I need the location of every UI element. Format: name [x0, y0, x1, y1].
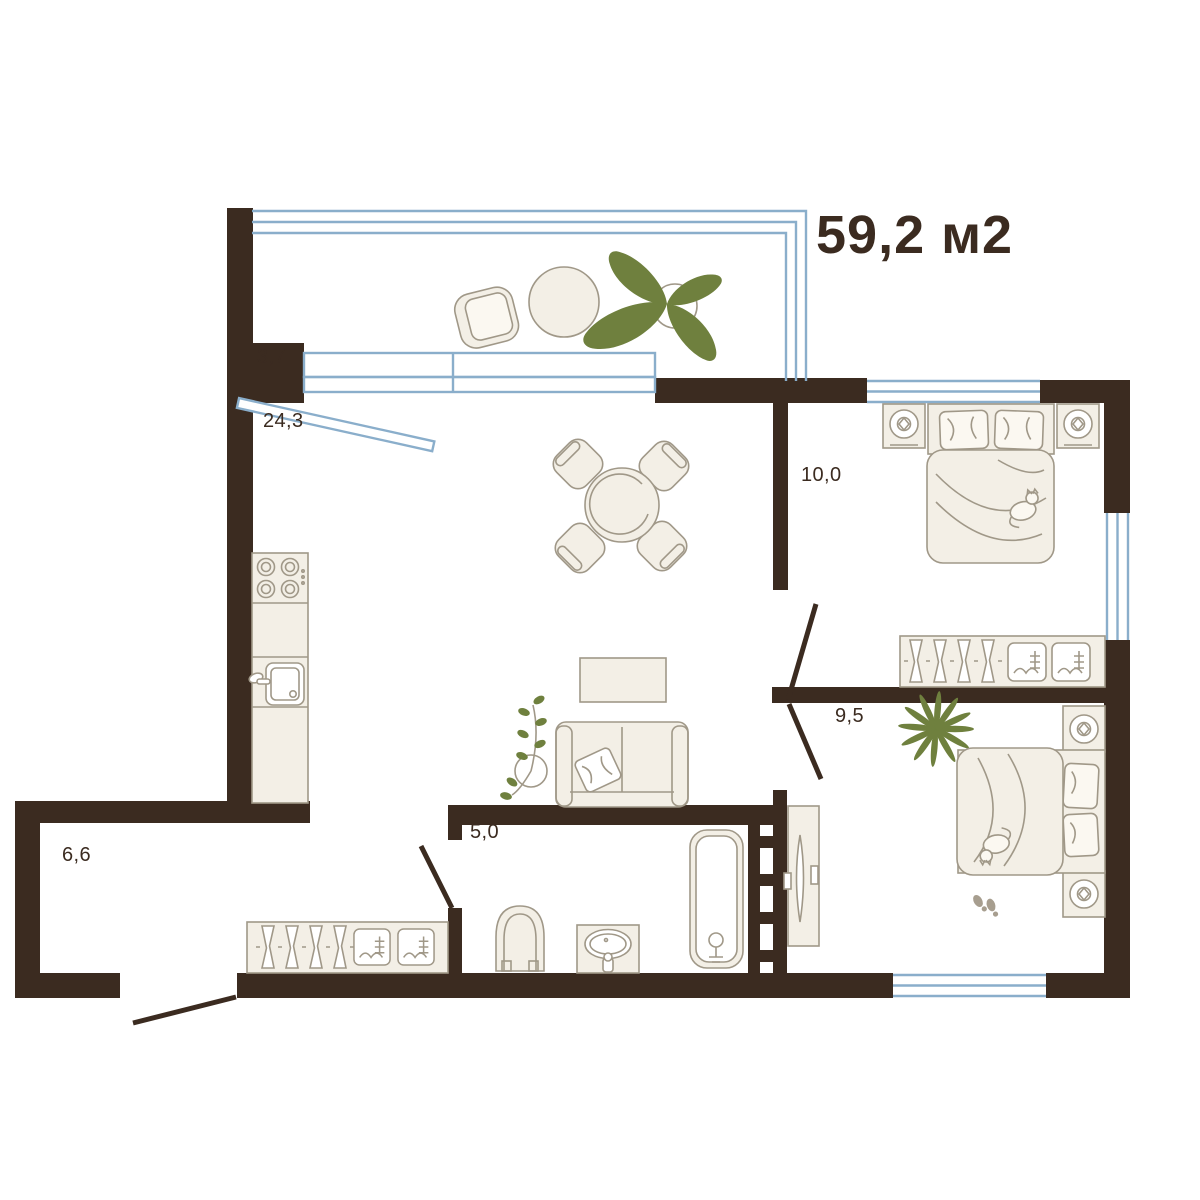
room-label-balcony: 3,7 — [257, 346, 286, 369]
wall-segment — [773, 403, 788, 590]
bedroom1-side-window — [1107, 513, 1128, 640]
bathtub — [690, 830, 743, 968]
room-label-bedroom-1: 10,0 — [801, 464, 842, 487]
hallway-closet — [247, 922, 448, 973]
wall-segment — [772, 973, 893, 998]
total-area-label: 59,2 м2 — [816, 204, 1013, 266]
wall-segment — [15, 801, 310, 823]
bedroom1-top-window — [867, 381, 1040, 402]
toilet — [496, 906, 544, 971]
nightstand — [1063, 706, 1105, 752]
bathroom-door — [421, 846, 452, 908]
balcony-furniture — [451, 244, 725, 368]
bedroom2-bottom-window — [893, 975, 1046, 996]
room-label-living-kitchen: 24,3 — [263, 410, 304, 433]
bedroom2-door — [789, 704, 821, 779]
room-label-bedroom-2: 9,5 — [835, 705, 864, 728]
dining-table — [585, 468, 659, 542]
wall-segment — [448, 805, 462, 840]
balcony-armchair — [451, 284, 522, 352]
slippers — [971, 893, 999, 918]
coffee-table — [580, 658, 666, 702]
wall-segment — [15, 973, 120, 998]
bathroom-sink — [577, 925, 639, 973]
nightstand — [1057, 404, 1099, 448]
living-room-plant — [499, 694, 548, 801]
wall-segment — [237, 973, 772, 998]
bedroom1-door — [788, 604, 816, 700]
wall-segment — [1046, 973, 1130, 998]
sofa — [556, 722, 688, 807]
nightstand — [883, 404, 925, 448]
wall-segment — [1104, 640, 1130, 998]
balcony-plant — [577, 244, 725, 368]
entrance-door — [133, 997, 236, 1023]
balcony-table — [529, 267, 599, 337]
double-bed — [927, 404, 1054, 563]
kitchen-counter — [248, 553, 308, 803]
dining-set — [548, 434, 693, 577]
wall-segment — [448, 908, 462, 973]
room-label-bathroom: 5,0 — [470, 821, 499, 844]
wall-segment — [655, 378, 867, 403]
bedroom1-furniture — [883, 404, 1105, 687]
floor-plan-drawing — [0, 0, 1200, 1200]
floor-plan: 59,2 м2 3,7 24,3 10,0 9,5 5,0 6,6 — [0, 0, 1200, 1200]
mirror-wardrobe — [784, 806, 819, 946]
double-bed — [957, 748, 1105, 875]
wall-segment — [15, 801, 40, 998]
wall-segment — [227, 208, 253, 823]
nightstand — [1063, 871, 1105, 917]
room-label-hallway: 6,6 — [62, 844, 91, 867]
wall-segment — [1104, 380, 1130, 513]
balcony-inner-window — [304, 353, 655, 392]
wardrobe — [900, 636, 1105, 687]
bedroom2-furniture — [784, 691, 1105, 946]
